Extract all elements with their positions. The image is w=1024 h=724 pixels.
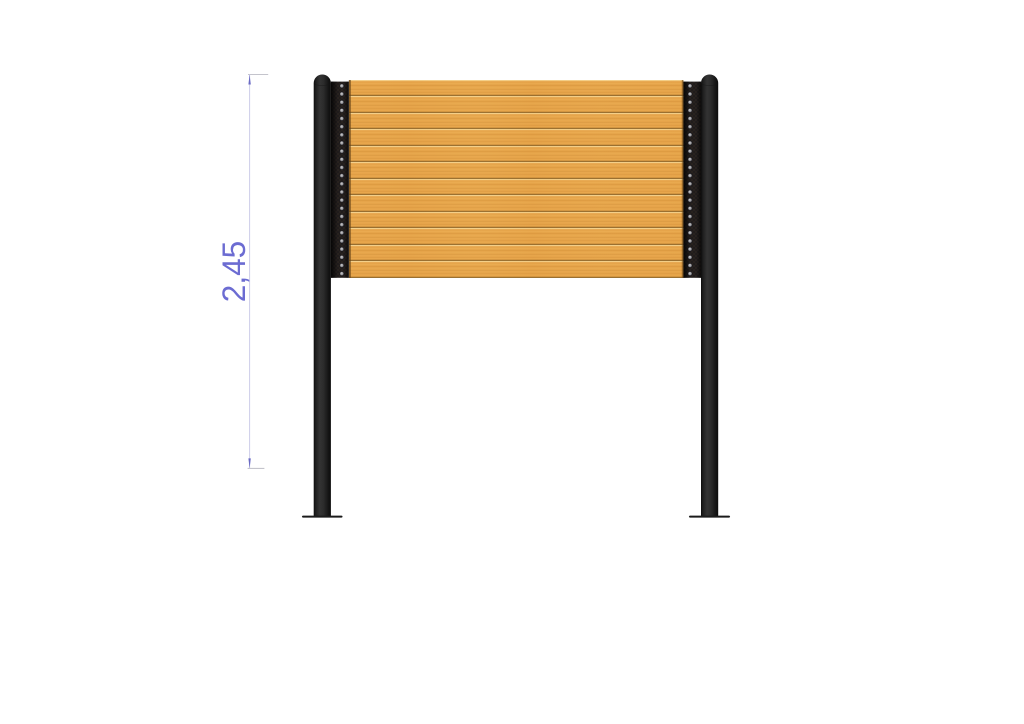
svg-text:2,45: 2,45: [216, 241, 252, 303]
